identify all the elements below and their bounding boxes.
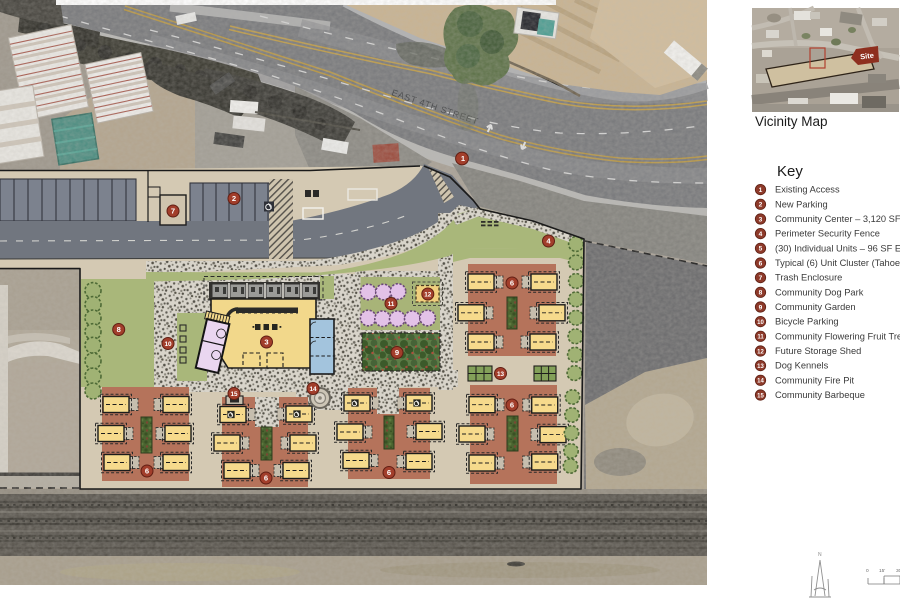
svg-text:6: 6 bbox=[264, 474, 268, 483]
svg-text:8: 8 bbox=[759, 290, 763, 297]
svg-text:Community Dog Park: Community Dog Park bbox=[775, 287, 864, 297]
svg-text:15': 15' bbox=[879, 568, 885, 574]
svg-text:15: 15 bbox=[757, 393, 764, 399]
svg-text:Existing Access: Existing Access bbox=[775, 185, 840, 195]
svg-text:2: 2 bbox=[232, 194, 236, 203]
svg-text:6: 6 bbox=[510, 401, 514, 410]
svg-text:0: 0 bbox=[866, 568, 869, 574]
svg-text:12: 12 bbox=[757, 349, 764, 355]
svg-text:6: 6 bbox=[387, 468, 391, 477]
svg-text:Dog Kennels: Dog Kennels bbox=[775, 361, 829, 371]
svg-text:Community Flowering Fruit Tree: Community Flowering Fruit Trees bbox=[775, 331, 900, 341]
svg-text:5: 5 bbox=[759, 246, 763, 253]
svg-text:Bicycle Parking: Bicycle Parking bbox=[775, 317, 839, 327]
svg-text:7: 7 bbox=[171, 207, 175, 216]
svg-text:N: N bbox=[818, 552, 822, 558]
svg-text:14: 14 bbox=[757, 379, 764, 385]
svg-text:Community Garden: Community Garden bbox=[775, 302, 856, 312]
svg-text:Key: Key bbox=[777, 163, 803, 180]
svg-text:4: 4 bbox=[759, 231, 763, 238]
svg-text:10: 10 bbox=[164, 341, 172, 348]
svg-text:14: 14 bbox=[309, 386, 317, 393]
svg-text:6: 6 bbox=[510, 279, 514, 288]
svg-text:6: 6 bbox=[145, 467, 149, 476]
svg-text:13: 13 bbox=[497, 371, 505, 378]
svg-text:15: 15 bbox=[230, 391, 238, 398]
svg-text:9: 9 bbox=[759, 304, 763, 311]
svg-text:Site: Site bbox=[860, 51, 875, 62]
svg-text:12: 12 bbox=[424, 292, 432, 299]
svg-text:Community Barbeque: Community Barbeque bbox=[775, 390, 865, 400]
svg-text:8: 8 bbox=[117, 325, 121, 334]
svg-text:9: 9 bbox=[395, 348, 399, 357]
svg-text:Future Storage Shed: Future Storage Shed bbox=[775, 346, 861, 356]
svg-text:Perimeter Security Fence: Perimeter Security Fence bbox=[775, 229, 880, 239]
svg-text:Trash Enclosure: Trash Enclosure bbox=[775, 273, 842, 283]
svg-text:11: 11 bbox=[757, 335, 764, 341]
svg-text:6: 6 bbox=[759, 260, 763, 267]
svg-text:7: 7 bbox=[759, 275, 763, 282]
svg-text:3: 3 bbox=[759, 216, 763, 223]
svg-text:13: 13 bbox=[757, 364, 764, 370]
svg-text:1: 1 bbox=[759, 187, 763, 194]
svg-text:30': 30' bbox=[896, 568, 900, 574]
svg-text:Typical (6) Unit Cluster (Taho: Typical (6) Unit Cluster (Tahoe, bbox=[775, 258, 900, 268]
svg-text:11: 11 bbox=[388, 301, 395, 308]
svg-text:Community Fire Pit: Community Fire Pit bbox=[775, 375, 854, 385]
svg-text:10: 10 bbox=[757, 320, 764, 326]
svg-text:(30) Individual Units – 96 SF: (30) Individual Units – 96 SF Each bbox=[775, 243, 900, 253]
svg-text:Vicinity Map: Vicinity Map bbox=[755, 114, 828, 129]
svg-text:Community Center – 3,120 SF: Community Center – 3,120 SF bbox=[775, 214, 900, 224]
svg-text:New Parking: New Parking bbox=[775, 199, 828, 209]
svg-text:2: 2 bbox=[759, 202, 763, 209]
svg-text:3: 3 bbox=[264, 338, 268, 347]
